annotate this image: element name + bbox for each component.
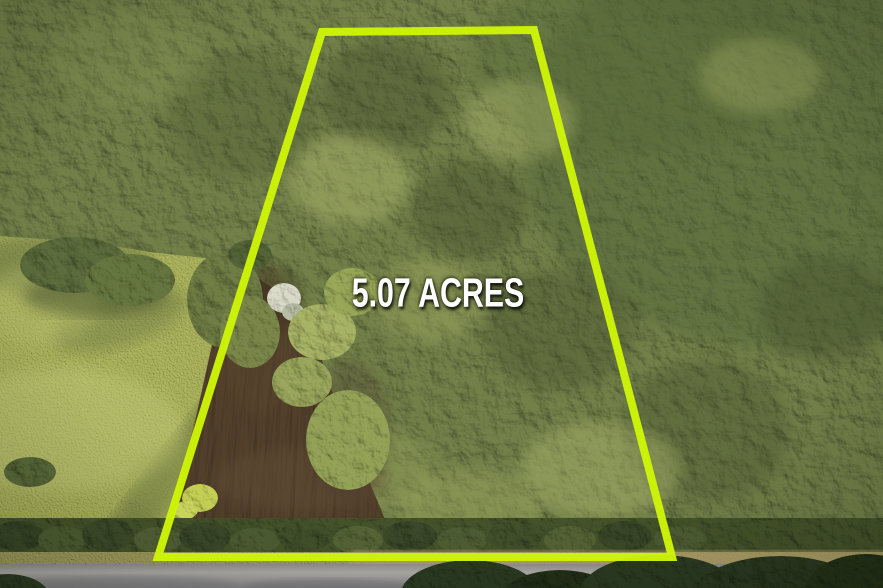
acreage-label: 5.07 ACRES bbox=[352, 270, 525, 317]
aerial-photo: 5.07 ACRES bbox=[0, 0, 883, 588]
